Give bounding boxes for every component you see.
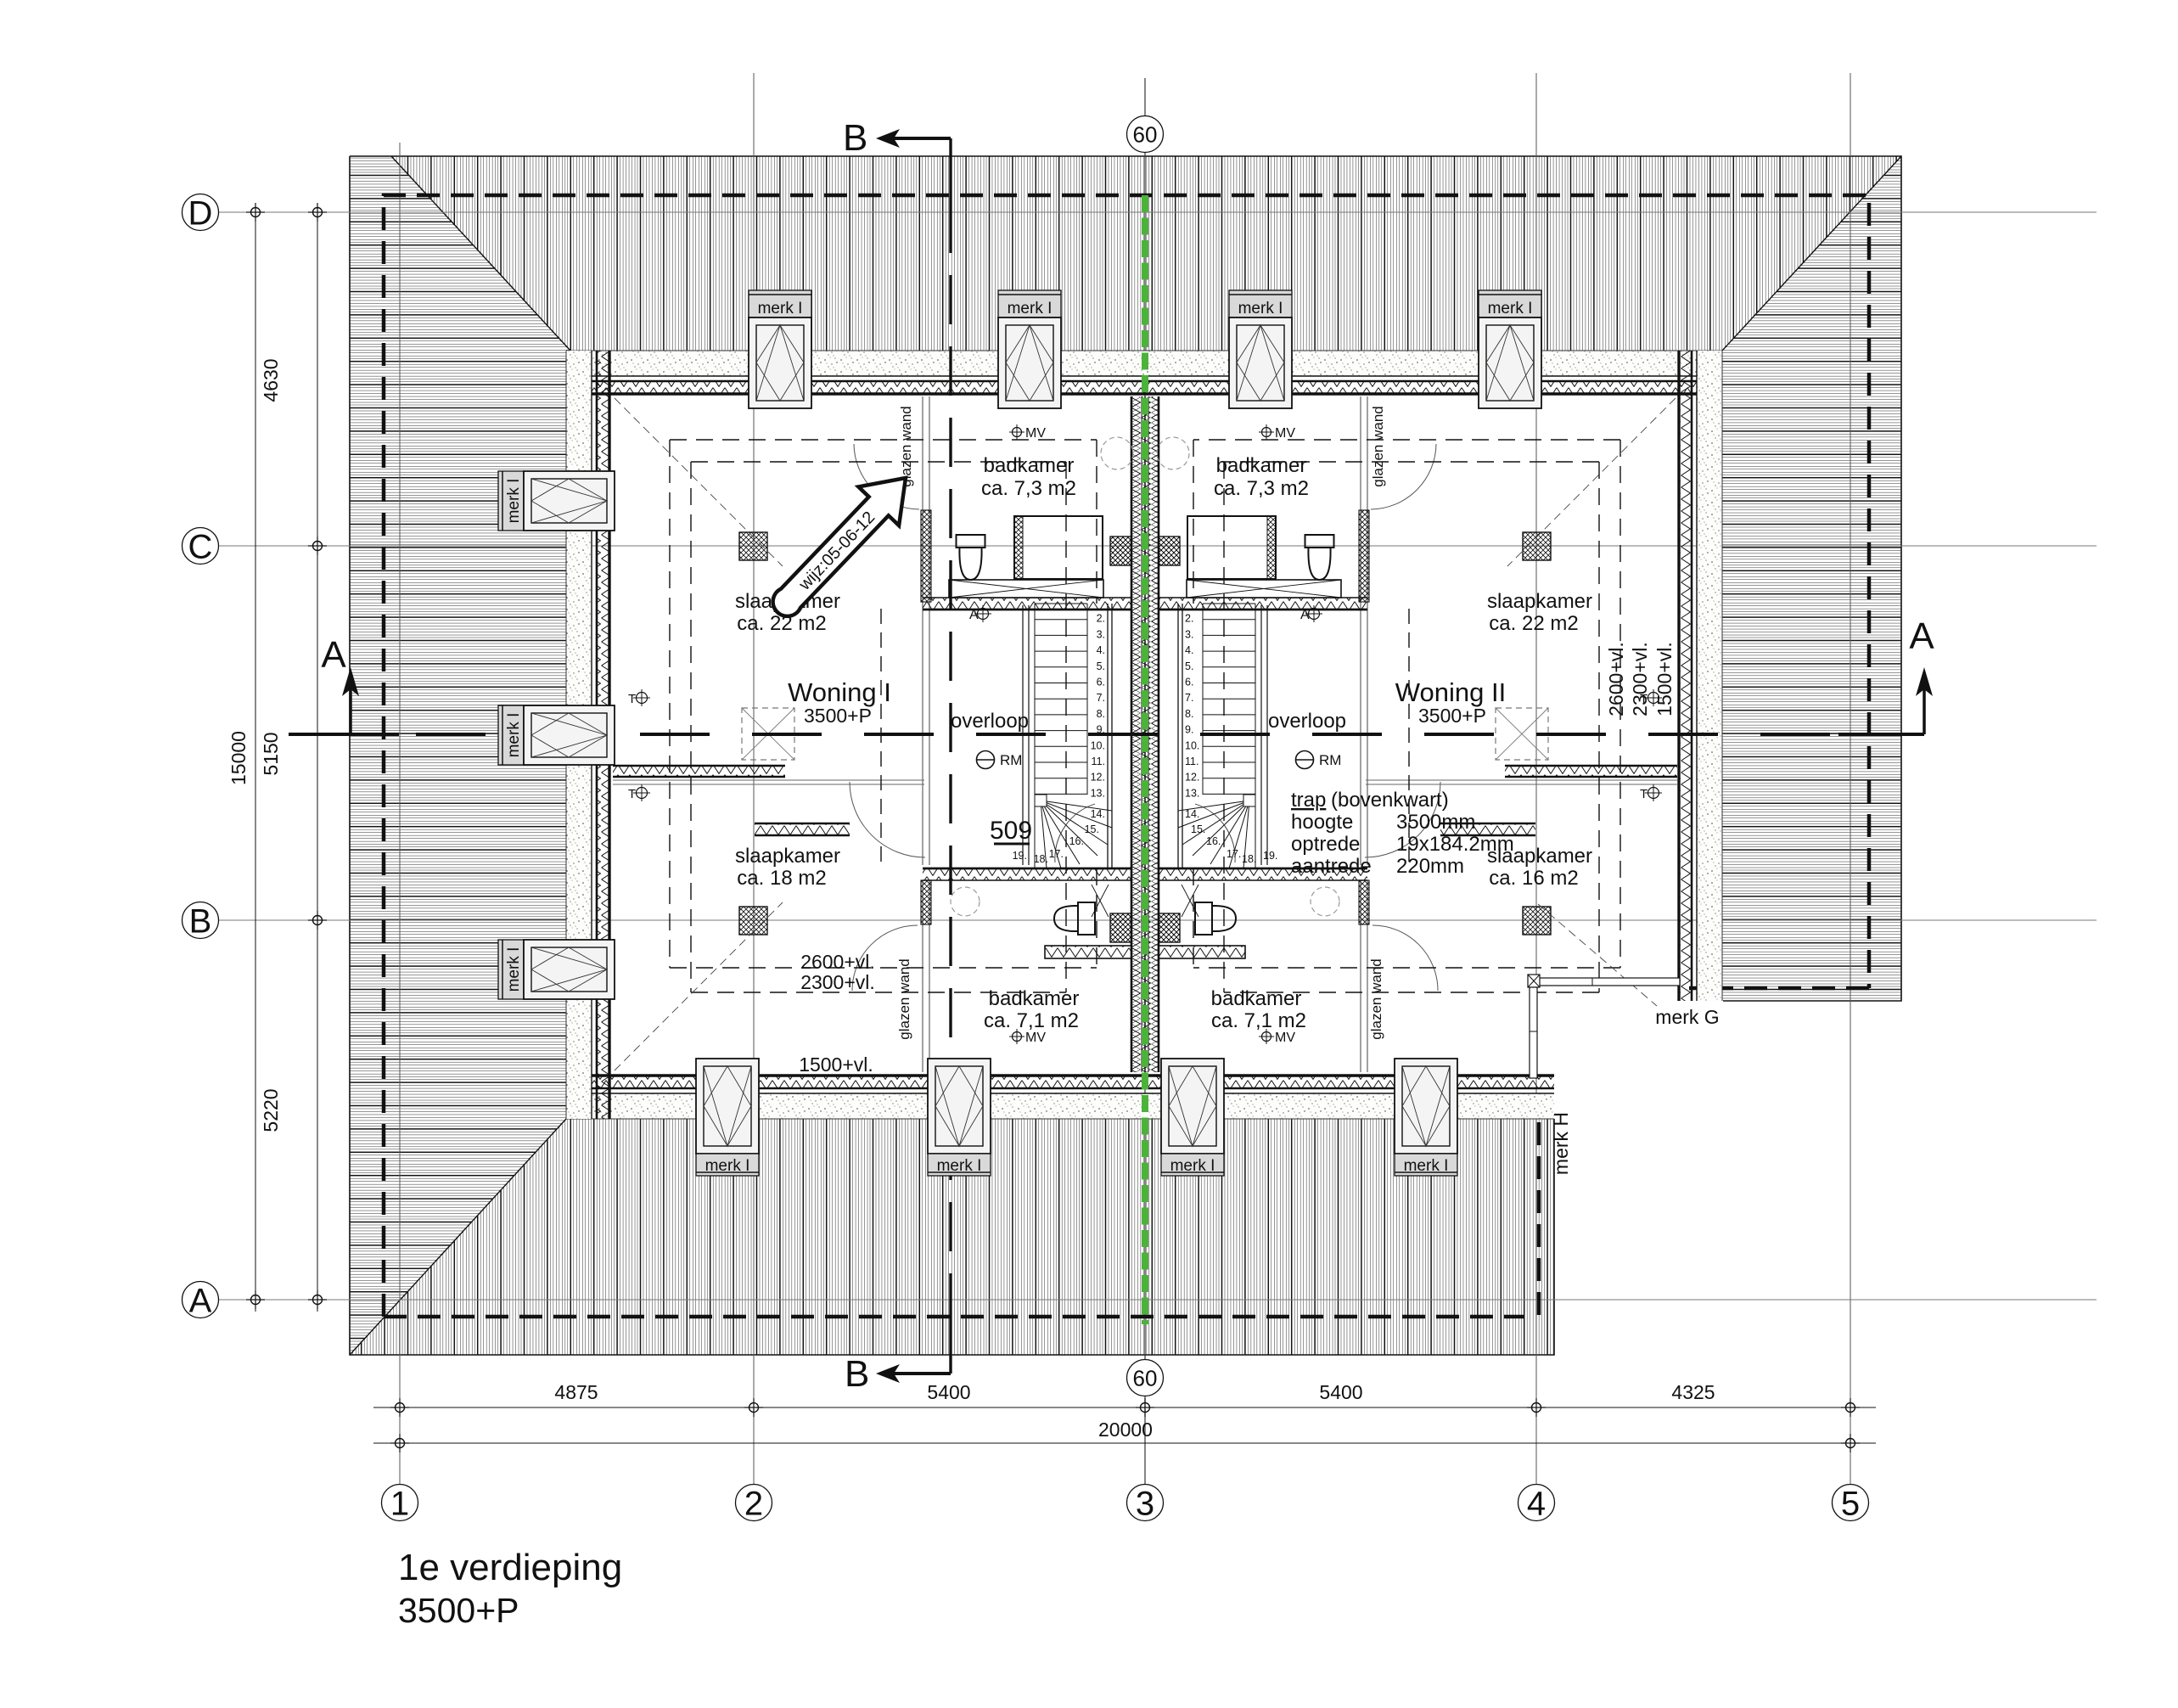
svg-text:badkamer: badkamer — [984, 454, 1075, 477]
svg-text:2600+vl.: 2600+vl. — [1605, 642, 1627, 716]
svg-text:19x184.2mm: 19x184.2mm — [1396, 833, 1514, 856]
svg-text:3500mm: 3500mm — [1396, 811, 1475, 834]
svg-text:19.: 19. — [1263, 850, 1277, 862]
svg-text:8.: 8. — [1185, 708, 1193, 720]
svg-text:C: C — [188, 528, 213, 565]
svg-text:slaapkamer: slaapkamer — [735, 845, 840, 868]
svg-text:MV: MV — [1025, 1031, 1046, 1045]
svg-text:8.: 8. — [1097, 708, 1105, 720]
svg-text:220mm: 220mm — [1396, 855, 1464, 878]
svg-text:7.: 7. — [1097, 692, 1105, 704]
svg-text:B: B — [845, 1353, 869, 1395]
svg-text:glazen wand: glazen wand — [1370, 406, 1386, 486]
svg-text:glazen wand: glazen wand — [896, 958, 912, 1039]
svg-text:18.: 18. — [1242, 853, 1256, 865]
svg-text:ca. 7,1 m2: ca. 7,1 m2 — [984, 1009, 1079, 1032]
svg-text:2300+vl.: 2300+vl. — [800, 971, 875, 993]
svg-text:17.: 17. — [1227, 848, 1241, 860]
svg-text:Woning II: Woning II — [1395, 677, 1506, 707]
svg-text:badkamer: badkamer — [1211, 987, 1302, 1010]
svg-text:MV: MV — [1275, 1031, 1295, 1045]
svg-text:hoogte: hoogte — [1291, 811, 1353, 834]
svg-text:slaapkamer: slaapkamer — [1487, 590, 1592, 613]
svg-text:badkamer: badkamer — [1216, 454, 1307, 477]
svg-text:MV: MV — [1025, 426, 1046, 441]
svg-text:merk I: merk I — [1008, 300, 1053, 317]
svg-text:1500+vl.: 1500+vl. — [799, 1053, 873, 1076]
svg-text:13.: 13. — [1185, 787, 1199, 799]
svg-text:RM: RM — [1319, 752, 1341, 768]
svg-text:17.: 17. — [1049, 848, 1064, 860]
svg-text:4.: 4. — [1097, 644, 1105, 656]
svg-text:5400: 5400 — [927, 1381, 970, 1403]
svg-text:merk I: merk I — [705, 1157, 750, 1175]
svg-text:4875: 4875 — [554, 1381, 598, 1403]
svg-text:merk I: merk I — [505, 479, 523, 524]
svg-text:optrede: optrede — [1291, 833, 1360, 856]
svg-text:ca. 7,3 m2: ca. 7,3 m2 — [1214, 477, 1309, 500]
svg-text:2600+vl.: 2600+vl. — [800, 951, 875, 973]
svg-text:T: T — [1640, 787, 1648, 801]
svg-text:15.: 15. — [1191, 823, 1205, 835]
svg-text:3500+P: 3500+P — [804, 705, 872, 727]
svg-text:1: 1 — [390, 1485, 409, 1522]
svg-text:12.: 12. — [1185, 772, 1199, 784]
svg-text:glazen wand: glazen wand — [898, 406, 914, 486]
svg-text:18.: 18. — [1034, 853, 1048, 865]
svg-text:B: B — [843, 117, 867, 159]
svg-text:merk I: merk I — [937, 1157, 982, 1175]
svg-text:10.: 10. — [1091, 739, 1105, 751]
svg-text:2: 2 — [744, 1485, 763, 1522]
svg-text:11.: 11. — [1092, 756, 1105, 767]
svg-text:B: B — [189, 902, 212, 940]
svg-text:7.: 7. — [1185, 692, 1193, 704]
svg-text:badkamer: badkamer — [989, 987, 1080, 1010]
svg-text:overloop: overloop — [1268, 710, 1346, 733]
svg-text:19.: 19. — [1013, 850, 1027, 862]
svg-text:5.: 5. — [1185, 660, 1193, 672]
svg-text:5400: 5400 — [1319, 1381, 1362, 1403]
svg-text:60: 60 — [1133, 121, 1158, 147]
svg-text:4325: 4325 — [1671, 1381, 1715, 1403]
svg-text:20000: 20000 — [1098, 1419, 1153, 1441]
svg-text:ca. 7,1 m2: ca. 7,1 m2 — [1211, 1009, 1306, 1032]
svg-text:5.: 5. — [1097, 660, 1105, 672]
svg-text:RM: RM — [1000, 752, 1022, 768]
svg-text:3: 3 — [1136, 1485, 1154, 1522]
svg-text:3.: 3. — [1097, 628, 1105, 640]
svg-text:9.: 9. — [1185, 724, 1193, 736]
svg-text:(bovenkwart): (bovenkwart) — [1331, 789, 1449, 812]
svg-text:merk G: merk G — [1655, 1006, 1719, 1028]
svg-text:ca. 16 m2: ca. 16 m2 — [1489, 867, 1578, 890]
svg-text:merk I: merk I — [1238, 300, 1283, 317]
svg-text:12.: 12. — [1091, 772, 1105, 784]
svg-text:T: T — [628, 787, 636, 801]
svg-text:3500+P: 3500+P — [398, 1591, 519, 1630]
svg-text:merk I: merk I — [1488, 300, 1533, 317]
svg-text:6.: 6. — [1185, 677, 1193, 688]
svg-text:2.: 2. — [1185, 613, 1193, 625]
svg-text:5: 5 — [1841, 1485, 1860, 1522]
svg-text:1e verdieping: 1e verdieping — [398, 1547, 622, 1588]
svg-text:aantrede: aantrede — [1291, 855, 1372, 878]
svg-text:merk H: merk H — [1550, 1112, 1572, 1175]
svg-text:merk I: merk I — [505, 947, 523, 992]
svg-text:13.: 13. — [1091, 787, 1105, 799]
svg-text:2300+vl.: 2300+vl. — [1629, 642, 1651, 716]
svg-text:14.: 14. — [1091, 808, 1105, 820]
svg-text:ca. 22 m2: ca. 22 m2 — [1489, 612, 1578, 635]
svg-text:16.: 16. — [1069, 835, 1084, 847]
svg-text:overloop: overloop — [951, 710, 1029, 733]
svg-text:14.: 14. — [1185, 808, 1199, 820]
svg-text:4.: 4. — [1185, 644, 1193, 656]
svg-text:merk I: merk I — [1404, 1157, 1449, 1175]
svg-text:10.: 10. — [1185, 739, 1199, 751]
svg-text:D: D — [188, 194, 213, 232]
svg-text:A: A — [189, 1282, 212, 1319]
svg-text:15000: 15000 — [227, 731, 250, 785]
svg-text:ca. 7,3 m2: ca. 7,3 m2 — [981, 477, 1076, 500]
svg-text:6.: 6. — [1097, 677, 1105, 688]
svg-text:3.: 3. — [1185, 628, 1193, 640]
svg-text:Woning I: Woning I — [788, 677, 891, 707]
svg-text:2.: 2. — [1097, 613, 1105, 625]
svg-text:16.: 16. — [1206, 835, 1221, 847]
svg-text:15.: 15. — [1085, 823, 1099, 835]
svg-text:merk I: merk I — [505, 713, 523, 758]
svg-text:3500+P: 3500+P — [1418, 705, 1486, 727]
svg-text:5150: 5150 — [260, 732, 282, 775]
svg-text:509: 509 — [990, 817, 1032, 845]
svg-text:1500+vl.: 1500+vl. — [1653, 642, 1676, 716]
svg-text:glazen wand: glazen wand — [1368, 958, 1384, 1039]
svg-text:merk I: merk I — [1170, 1157, 1215, 1175]
svg-text:trap: trap — [1291, 789, 1326, 812]
svg-text:A: A — [321, 634, 346, 676]
svg-text:4: 4 — [1527, 1485, 1546, 1522]
svg-text:T: T — [628, 692, 636, 706]
svg-text:4630: 4630 — [260, 358, 282, 402]
svg-text:60: 60 — [1133, 1365, 1158, 1391]
svg-text:5220: 5220 — [260, 1088, 282, 1132]
svg-text:merk I: merk I — [758, 300, 803, 317]
svg-text:ca. 18 m2: ca. 18 m2 — [737, 867, 826, 890]
svg-text:A: A — [1909, 615, 1934, 657]
svg-text:MV: MV — [1275, 426, 1295, 441]
svg-text:11.: 11. — [1185, 756, 1198, 767]
